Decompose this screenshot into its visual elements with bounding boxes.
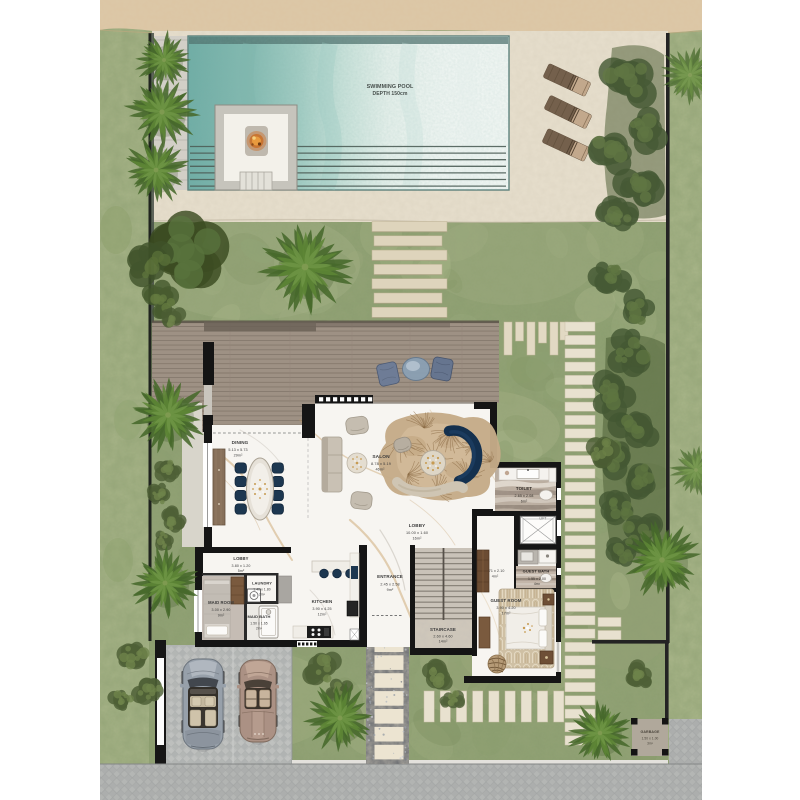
- svg-text:8.78 x 5.19: 8.78 x 5.19: [371, 462, 391, 466]
- svg-text:MAID BATH: MAID BATH: [247, 614, 270, 619]
- svg-text:9m²: 9m²: [387, 588, 394, 592]
- svg-text:LAUNDRY: LAUNDRY: [252, 581, 272, 586]
- svg-text:14m²: 14m²: [439, 640, 448, 644]
- svg-text:1.50 x 1.00: 1.50 x 1.00: [642, 737, 659, 741]
- svg-text:4m²: 4m²: [492, 575, 499, 579]
- svg-text:10.00 x 1.60: 10.00 x 1.60: [406, 531, 428, 535]
- svg-text:LOBBY: LOBBY: [233, 556, 248, 561]
- svg-text:2m²: 2m²: [256, 627, 263, 631]
- svg-text:2.60 x 4.60: 2.60 x 4.60: [433, 635, 452, 639]
- svg-text:GUEST ROOM: GUEST ROOM: [490, 598, 521, 603]
- svg-text:3.90 x 4.25: 3.90 x 4.25: [312, 607, 331, 611]
- svg-text:1.55 x 2.00: 1.55 x 2.00: [528, 577, 546, 581]
- svg-text:SALON: SALON: [372, 454, 390, 460]
- svg-text:6m²: 6m²: [521, 500, 528, 504]
- svg-text:SWIMMING POOL: SWIMMING POOL: [367, 84, 414, 90]
- svg-text:DINING: DINING: [232, 440, 249, 445]
- svg-text:3.80 x 1.20: 3.80 x 1.20: [232, 564, 251, 568]
- svg-text:LOBBY: LOBBY: [409, 523, 426, 528]
- svg-text:2.65 x 2.08: 2.65 x 2.08: [515, 494, 534, 498]
- svg-text:2.45 x 2.58: 2.45 x 2.58: [380, 583, 399, 587]
- svg-text:1.40 x 1.80: 1.40 x 1.80: [253, 588, 270, 592]
- svg-text:GUEST BATH: GUEST BATH: [523, 569, 550, 574]
- svg-text:46m²: 46m²: [375, 468, 385, 472]
- svg-text:17m²: 17m²: [502, 612, 511, 616]
- svg-text:9m²: 9m²: [218, 614, 225, 618]
- svg-text:5m²: 5m²: [238, 569, 245, 573]
- svg-text:1.50 x 1.65: 1.50 x 1.65: [250, 622, 267, 626]
- svg-text:MAID ROOM: MAID ROOM: [208, 600, 234, 605]
- svg-text:16m²: 16m²: [412, 537, 422, 541]
- svg-text:2m²: 2m²: [259, 593, 266, 597]
- svg-text:29m²: 29m²: [234, 454, 243, 458]
- svg-text:3m²: 3m²: [647, 742, 653, 746]
- svg-text:STAIRCASE: STAIRCASE: [430, 627, 456, 632]
- svg-text:5.13 x 5.73: 5.13 x 5.73: [228, 448, 247, 452]
- svg-text:GARBAGE: GARBAGE: [640, 730, 660, 734]
- svg-text:12m²: 12m²: [318, 613, 327, 617]
- svg-text:DEPTH 150cm: DEPTH 150cm: [372, 91, 407, 97]
- svg-text:3.90 x 4.20: 3.90 x 4.20: [496, 606, 515, 610]
- svg-text:4m²: 4m²: [534, 582, 541, 586]
- svg-text:TOILET: TOILET: [516, 486, 532, 491]
- svg-text:LIFT: LIFT: [540, 517, 547, 521]
- svg-text:KITCHEN: KITCHEN: [312, 599, 333, 604]
- svg-text:3.00 x 2.90: 3.00 x 2.90: [212, 608, 231, 612]
- svg-text:ENTRANCE: ENTRANCE: [377, 574, 403, 579]
